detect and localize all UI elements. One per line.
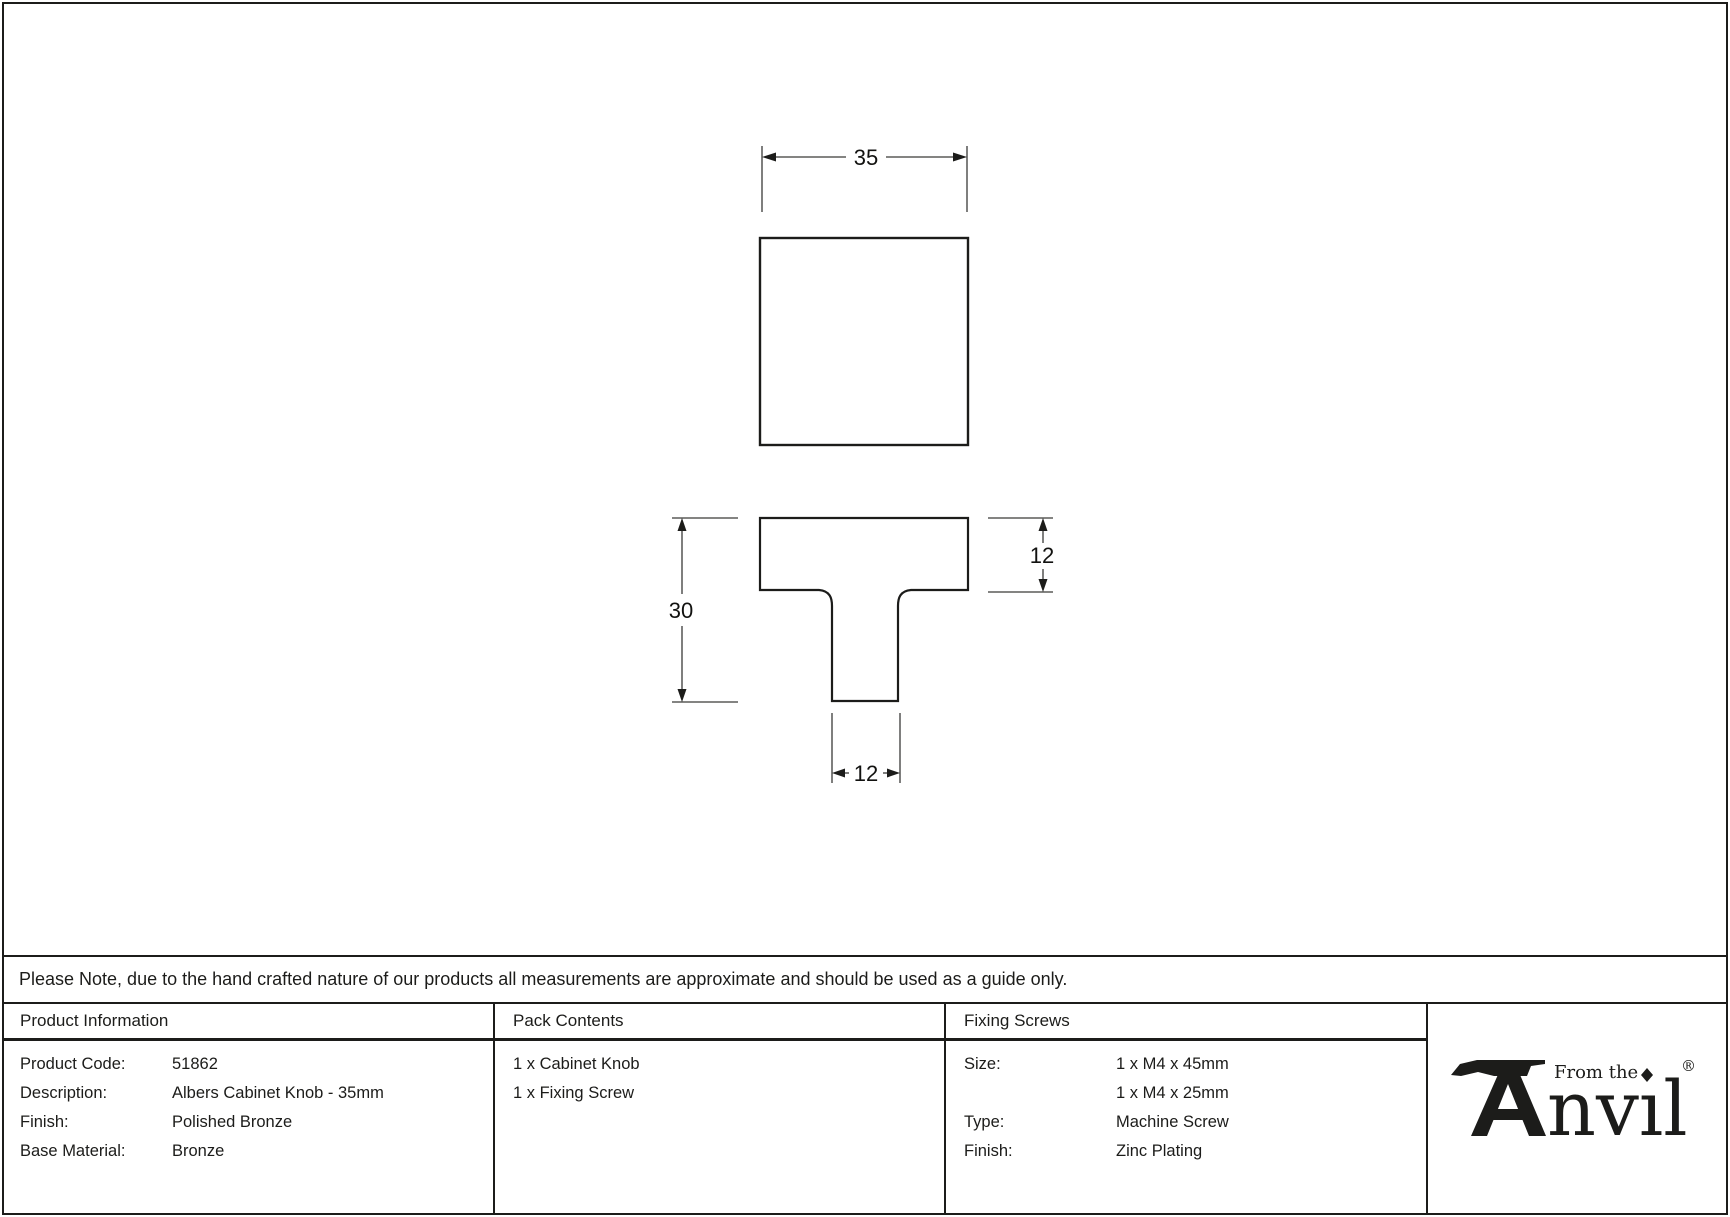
measurement-note-text: Please Note, due to the hand crafted nat… xyxy=(19,969,1067,990)
product-information-header: Product Information xyxy=(2,1004,493,1041)
dim-stem-label: 12 xyxy=(854,761,878,786)
row-label: Type: xyxy=(964,1108,1116,1137)
logo-anvil-text: nvıl xyxy=(1547,1064,1688,1148)
row-value: 1 x M4 x 45mm xyxy=(1116,1050,1229,1079)
table-row: Finish: Polished Bronze xyxy=(20,1108,493,1137)
fixing-screws-body: Size: 1 x M4 x 45mm 1 x M4 x 25mm Type: … xyxy=(946,1041,1426,1215)
info-table: Product Information Product Code: 51862 … xyxy=(2,1004,1728,1215)
product-information-column: Product Information Product Code: 51862 … xyxy=(2,1004,493,1215)
row-label: Base Material: xyxy=(20,1137,172,1166)
row-label: Finish: xyxy=(964,1137,1116,1166)
row-label: Description: xyxy=(20,1079,172,1108)
product-information-header-text: Product Information xyxy=(20,1011,168,1031)
row-value: Albers Cabinet Knob - 35mm xyxy=(172,1079,384,1108)
table-row: Type: Machine Screw xyxy=(964,1108,1426,1137)
pack-contents-column: Pack Contents 1 x Cabinet Knob 1 x Fixin… xyxy=(493,1004,944,1215)
spec-sheet-page: 35 30 12 xyxy=(0,0,1730,1217)
table-row: Base Material: Bronze xyxy=(20,1137,493,1166)
pack-contents-header: Pack Contents xyxy=(495,1004,944,1041)
row-label: Product Code: xyxy=(20,1050,172,1079)
brand-logo-cell: From the nvıl ® xyxy=(1426,1004,1728,1215)
measurement-note-row: Please Note, due to the hand crafted nat… xyxy=(2,955,1728,1004)
anvil-icon xyxy=(1451,1060,1545,1076)
fixing-screws-header-text: Fixing Screws xyxy=(964,1011,1070,1031)
row-label: Finish: xyxy=(20,1108,172,1137)
list-item: 1 x Fixing Screw xyxy=(513,1079,944,1108)
row-value: Bronze xyxy=(172,1137,224,1166)
pack-contents-header-text: Pack Contents xyxy=(513,1011,624,1031)
fixing-screws-column: Fixing Screws Size: 1 x M4 x 45mm 1 x M4… xyxy=(944,1004,1426,1215)
dim-head-label: 12 xyxy=(1030,543,1054,568)
row-value: Zinc Plating xyxy=(1116,1137,1202,1166)
table-row: Size: 1 x M4 x 45mm xyxy=(964,1050,1426,1079)
product-information-body: Product Code: 51862 Description: Albers … xyxy=(2,1041,493,1215)
fixing-screws-header: Fixing Screws xyxy=(946,1004,1426,1041)
front-view-square xyxy=(760,238,968,445)
table-row: 1 x M4 x 25mm xyxy=(964,1079,1426,1108)
table-row: Description: Albers Cabinet Knob - 35mm xyxy=(20,1079,493,1108)
row-label: Size: xyxy=(964,1050,1116,1079)
row-value: Machine Screw xyxy=(1116,1108,1229,1137)
row-value: Polished Bronze xyxy=(172,1108,292,1137)
technical-drawing: 35 30 12 xyxy=(0,0,1730,954)
row-label xyxy=(964,1079,1116,1108)
letter-a-crossbar xyxy=(1484,1109,1526,1120)
pack-contents-body: 1 x Cabinet Knob 1 x Fixing Screw xyxy=(495,1041,944,1215)
from-the-anvil-logo: From the nvıl ® xyxy=(1447,1053,1707,1148)
list-item: 1 x Cabinet Knob xyxy=(513,1050,944,1079)
table-row: Finish: Zinc Plating xyxy=(964,1137,1426,1166)
anvil-letter-a xyxy=(1471,1070,1546,1136)
row-value: 51862 xyxy=(172,1050,218,1079)
info-panel: Please Note, due to the hand crafted nat… xyxy=(2,955,1728,1215)
registered-trademark-symbol: ® xyxy=(1681,1057,1696,1075)
side-view-profile xyxy=(760,518,968,701)
row-value: 1 x M4 x 25mm xyxy=(1116,1079,1229,1108)
table-row: Product Code: 51862 xyxy=(20,1050,493,1079)
dim-width-label: 35 xyxy=(854,145,878,170)
dim-height-label: 30 xyxy=(669,598,693,623)
